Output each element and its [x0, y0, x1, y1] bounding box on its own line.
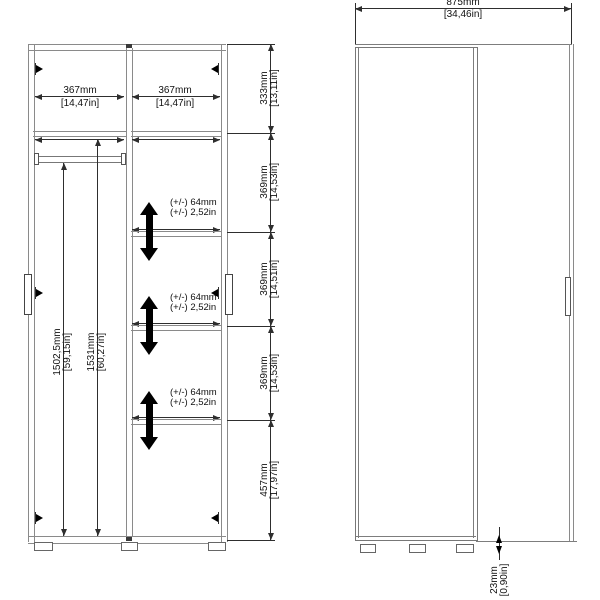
rail-bracket-right: [121, 153, 126, 165]
hinge-arrow-icon: [211, 65, 218, 73]
hinge-arrow-icon: [36, 514, 43, 522]
rail-bracket-left: [34, 153, 39, 165]
chain-457-inch: [17,97in]: [270, 420, 280, 540]
shelf-width-line-right: [132, 139, 220, 140]
clearance-inch: [0,90in]: [500, 520, 510, 600]
foot: [121, 542, 138, 551]
shelf-adjust-arrow-icon: [140, 202, 158, 261]
overall-width-mm: 875mm: [423, 0, 503, 8]
width-dim-line-right: [132, 96, 220, 97]
interior-height-inch: [60,27in]: [97, 292, 107, 412]
cabinet-top-edge: [355, 44, 572, 45]
foot: [208, 542, 226, 551]
chain-369c-inch: [14,53in]: [270, 313, 280, 433]
width-dim-right-inch: [14,47in]: [139, 99, 211, 109]
top-shelf-right: [131, 131, 221, 137]
hanging-rail: [35, 156, 124, 163]
chain-label-457: 457mm [17,97in]: [260, 420, 280, 540]
door-inner-right-line: [473, 48, 474, 538]
width-ext-right: [571, 3, 572, 44]
hinge-line: [218, 63, 219, 75]
foot: [409, 544, 426, 553]
shelf-adjust-3-inch: (+/-) 2,52in: [170, 398, 217, 408]
shelf-adjust-label-3: (+/-) 64mm (+/-) 2,52in: [170, 388, 217, 407]
width-dim-left-mm: 367mm: [44, 86, 116, 96]
shelf-adjust-1-inch: (+/-) 2,52in: [170, 208, 217, 218]
door-inner-bottom-line: [356, 536, 476, 537]
hinge-line: [218, 512, 219, 524]
shelf-adjust-label-2: (+/-) 64mm (+/-) 2,52in: [170, 293, 217, 312]
foot: [456, 544, 474, 553]
bottom-connector-mark: [126, 537, 132, 541]
overall-width-inch: [34,46in]: [423, 10, 503, 20]
hinge-arrow-icon: [36, 289, 43, 297]
interior-height-label: 1531mm [60,27in]: [87, 292, 107, 412]
rail-height-inch: [59,15in]: [63, 292, 73, 412]
hinge-line: [218, 287, 219, 299]
shelf-adjust-arrow-icon: [140, 296, 158, 355]
door-handle-left: [24, 274, 32, 315]
hinge-arrow-icon: [36, 65, 43, 73]
top-shelf-left: [33, 131, 126, 137]
sliding-door-front: [355, 47, 478, 541]
sliding-door-handle: [565, 277, 571, 316]
wardrobe-technical-drawing: 367mm [14,47in] 367mm [14,47in] 1502,5mm…: [0, 0, 600, 600]
shelf-adjust-2-inch: (+/-) 2,52in: [170, 303, 217, 313]
shelf-width-line-left: [35, 139, 124, 140]
shelf-adjust-arrow-icon: [140, 391, 158, 450]
shelf-adjust-label-1: (+/-) 64mm (+/-) 2,52in: [170, 198, 217, 217]
width-dim-right-mm: 367mm: [139, 86, 211, 96]
door-handle-right: [225, 274, 233, 315]
foot: [34, 542, 53, 551]
width-dim-line-left: [35, 96, 124, 97]
clearance-label: 23mm [0,90in]: [490, 520, 510, 600]
foot: [360, 544, 376, 553]
door-inner-left-line: [358, 48, 359, 538]
chain-ext-bottom: [227, 540, 275, 541]
width-ext-left: [355, 3, 356, 44]
hinge-arrow-icon: [211, 514, 218, 522]
hinge-arrow-icon: [211, 289, 218, 297]
center-divider-panel: [126, 48, 133, 536]
top-connector-mark: [126, 44, 132, 48]
rail-height-label: 1502,5mm [59,15in]: [53, 292, 73, 412]
chain-label-369c: 369mm [14,53in]: [260, 313, 280, 433]
width-dim-left-inch: [14,47in]: [44, 99, 116, 109]
